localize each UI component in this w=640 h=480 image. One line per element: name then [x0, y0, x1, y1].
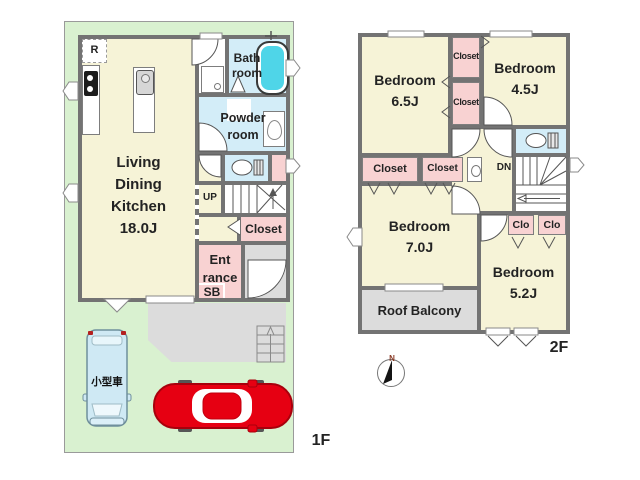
fridge-label: R [82, 44, 107, 56]
toilet-storage [272, 155, 286, 181]
clo-b-label: Clo [538, 219, 566, 231]
dn-label: DN [494, 162, 514, 173]
shoe-box-label: SB [199, 285, 225, 299]
stairs-2f [516, 157, 566, 211]
hall-1f-lower [199, 217, 237, 241]
closet-1f-label: Closet [241, 222, 286, 236]
closet-2f-top-b-label: Closet [449, 97, 483, 107]
window-mark-stairs-right [570, 158, 584, 172]
floor-plan-canvas: 小型車 [0, 0, 640, 480]
bedroom-70-label: Bedroom7.0J [362, 216, 477, 258]
room-toilet-2f [516, 129, 566, 153]
hall-1f [199, 155, 221, 181]
powder-label: Powderroom [205, 110, 281, 144]
up-label: UP [199, 192, 221, 203]
washstand-2f [467, 157, 482, 182]
bedroom-52-label: Bedroom5.2J [481, 262, 566, 304]
floor1-label: 1F [306, 432, 336, 450]
closet-2f-mid-a-label: Closet [362, 163, 418, 175]
closet-2f-top-a-label: Closet [449, 51, 483, 61]
driveway [148, 303, 286, 362]
clo-a-label: Clo [508, 219, 534, 231]
stove-icon [84, 71, 98, 96]
ldk-label: LivingDining Kitchen18.0J [82, 152, 195, 240]
room-toilet-1f [225, 155, 268, 181]
closet-2f-mid-b-label: Closet [422, 163, 463, 174]
roof-balcony-label: Roof Balcony [362, 303, 477, 318]
bathroom-label: Bathroom [222, 51, 272, 81]
stairs-1f [225, 185, 286, 213]
entrance-label: Entrance [199, 251, 241, 287]
bedroom-45-label: Bedroom4.5J [484, 58, 566, 100]
bedroom-65-label: Bedroom6.5J [362, 70, 448, 112]
sink-icon [136, 70, 154, 95]
entrance-porch [245, 245, 286, 298]
washing-machine-icon [201, 66, 224, 93]
compass-needle [383, 360, 392, 384]
compass-north-label: N [389, 354, 395, 363]
compass: N [372, 350, 412, 394]
floor2-label: 2F [544, 339, 574, 357]
